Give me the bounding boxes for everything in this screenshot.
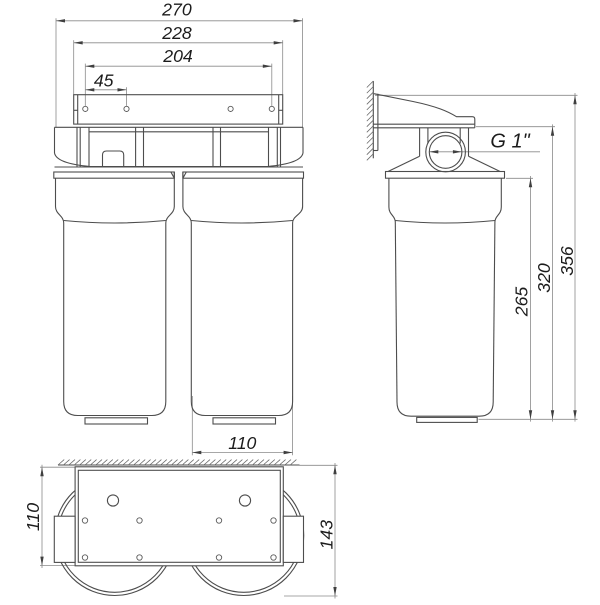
svg-text:110: 110 — [23, 503, 43, 531]
svg-text:356: 356 — [557, 246, 577, 276]
svg-text:110: 110 — [228, 433, 256, 453]
svg-text:204: 204 — [162, 46, 193, 66]
svg-text:228: 228 — [161, 23, 192, 43]
svg-text:270: 270 — [161, 0, 192, 20]
svg-text:265: 265 — [512, 287, 532, 318]
svg-text:320: 320 — [534, 263, 554, 293]
svg-text:45: 45 — [94, 71, 114, 91]
svg-text:G 1": G 1" — [490, 131, 530, 153]
svg-text:143: 143 — [317, 520, 337, 550]
